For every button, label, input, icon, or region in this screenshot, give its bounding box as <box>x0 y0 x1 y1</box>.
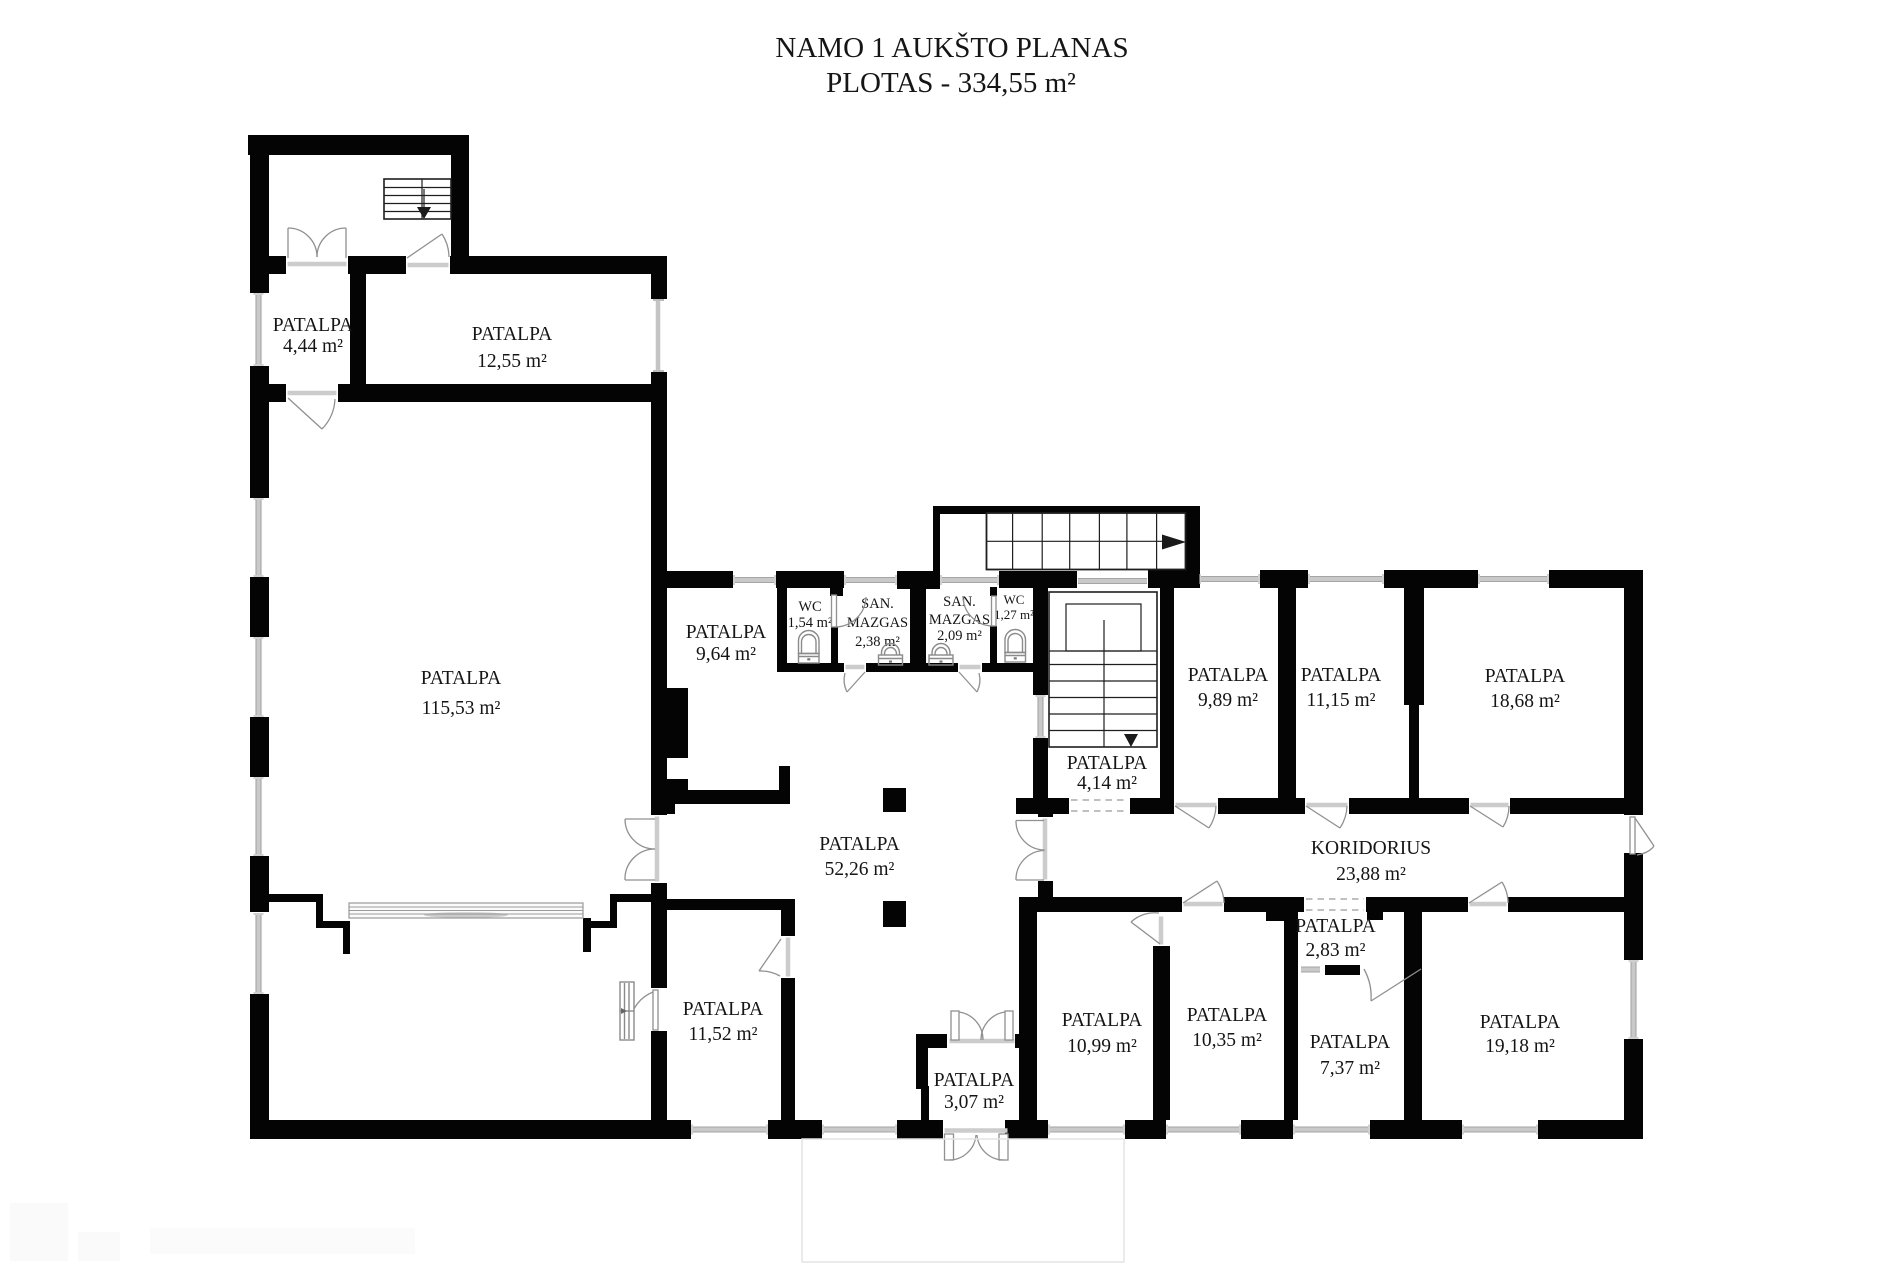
svg-text:WC: WC <box>1004 592 1025 607</box>
svg-text:PATALPA: PATALPA <box>273 315 353 336</box>
svg-text:SAN.: SAN. <box>943 594 976 610</box>
svg-text:PATALPA: PATALPA <box>683 999 763 1020</box>
svg-text:PATALPA: PATALPA <box>1188 665 1268 686</box>
svg-text:4,14 m²: 4,14 m² <box>1077 773 1137 794</box>
svg-text:2,83 m²: 2,83 m² <box>1305 940 1365 961</box>
svg-text:9,64 m²: 9,64 m² <box>696 644 756 665</box>
svg-text:9,89 m²: 9,89 m² <box>1198 690 1258 711</box>
svg-text:PATALPA: PATALPA <box>472 324 552 345</box>
svg-text:PATALPA: PATALPA <box>686 622 766 643</box>
svg-text:PATALPA: PATALPA <box>1301 665 1381 686</box>
svg-text:PATALPA: PATALPA <box>1295 916 1375 937</box>
svg-text:2,38 m²: 2,38 m² <box>855 634 900 650</box>
svg-text:12,55 m²: 12,55 m² <box>477 351 547 372</box>
svg-text:1,27 m²: 1,27 m² <box>994 607 1034 622</box>
svg-text:2,09 m²: 2,09 m² <box>937 628 982 644</box>
svg-text:1,54 m²: 1,54 m² <box>788 615 833 631</box>
svg-text:MAZGAS: MAZGAS <box>847 615 908 631</box>
svg-text:NAMO 1 AUKŠTO PLANAS: NAMO 1 AUKŠTO PLANAS <box>775 31 1128 64</box>
svg-text:KORIDORIUS: KORIDORIUS <box>1311 838 1431 859</box>
svg-text:PATALPA: PATALPA <box>1485 666 1565 687</box>
svg-text:PATALPA: PATALPA <box>934 1070 1014 1091</box>
svg-text:4,44 m²: 4,44 m² <box>283 336 343 357</box>
svg-text:PATALPA: PATALPA <box>1062 1010 1142 1031</box>
svg-text:WC: WC <box>798 599 821 615</box>
svg-text:PATALPA: PATALPA <box>1310 1032 1390 1053</box>
svg-text:115,53 m²: 115,53 m² <box>422 698 501 719</box>
svg-text:PATALPA: PATALPA <box>1067 753 1147 774</box>
svg-text:3,07 m²: 3,07 m² <box>944 1092 1004 1113</box>
svg-text:PATALPA: PATALPA <box>819 834 899 855</box>
svg-text:23,88 m²: 23,88 m² <box>1336 864 1406 885</box>
svg-text:10,99 m²: 10,99 m² <box>1067 1036 1137 1057</box>
svg-text:PATALPA: PATALPA <box>421 668 501 689</box>
svg-text:PLOTAS - 334,55 m²: PLOTAS - 334,55 m² <box>826 67 1076 99</box>
svg-text:52,26 m²: 52,26 m² <box>825 859 895 880</box>
svg-text:PATALPA: PATALPA <box>1480 1012 1560 1033</box>
svg-text:11,15 m²: 11,15 m² <box>1306 690 1375 711</box>
svg-text:MAZGAS: MAZGAS <box>929 612 990 628</box>
svg-text:7,37 m²: 7,37 m² <box>1320 1058 1380 1079</box>
svg-text:18,68 m²: 18,68 m² <box>1490 691 1560 712</box>
svg-text:19,18 m²: 19,18 m² <box>1485 1036 1555 1057</box>
svg-text:PATALPA: PATALPA <box>1187 1005 1267 1026</box>
svg-text:10,35 m²: 10,35 m² <box>1192 1030 1262 1051</box>
svg-text:11,52 m²: 11,52 m² <box>688 1024 757 1045</box>
